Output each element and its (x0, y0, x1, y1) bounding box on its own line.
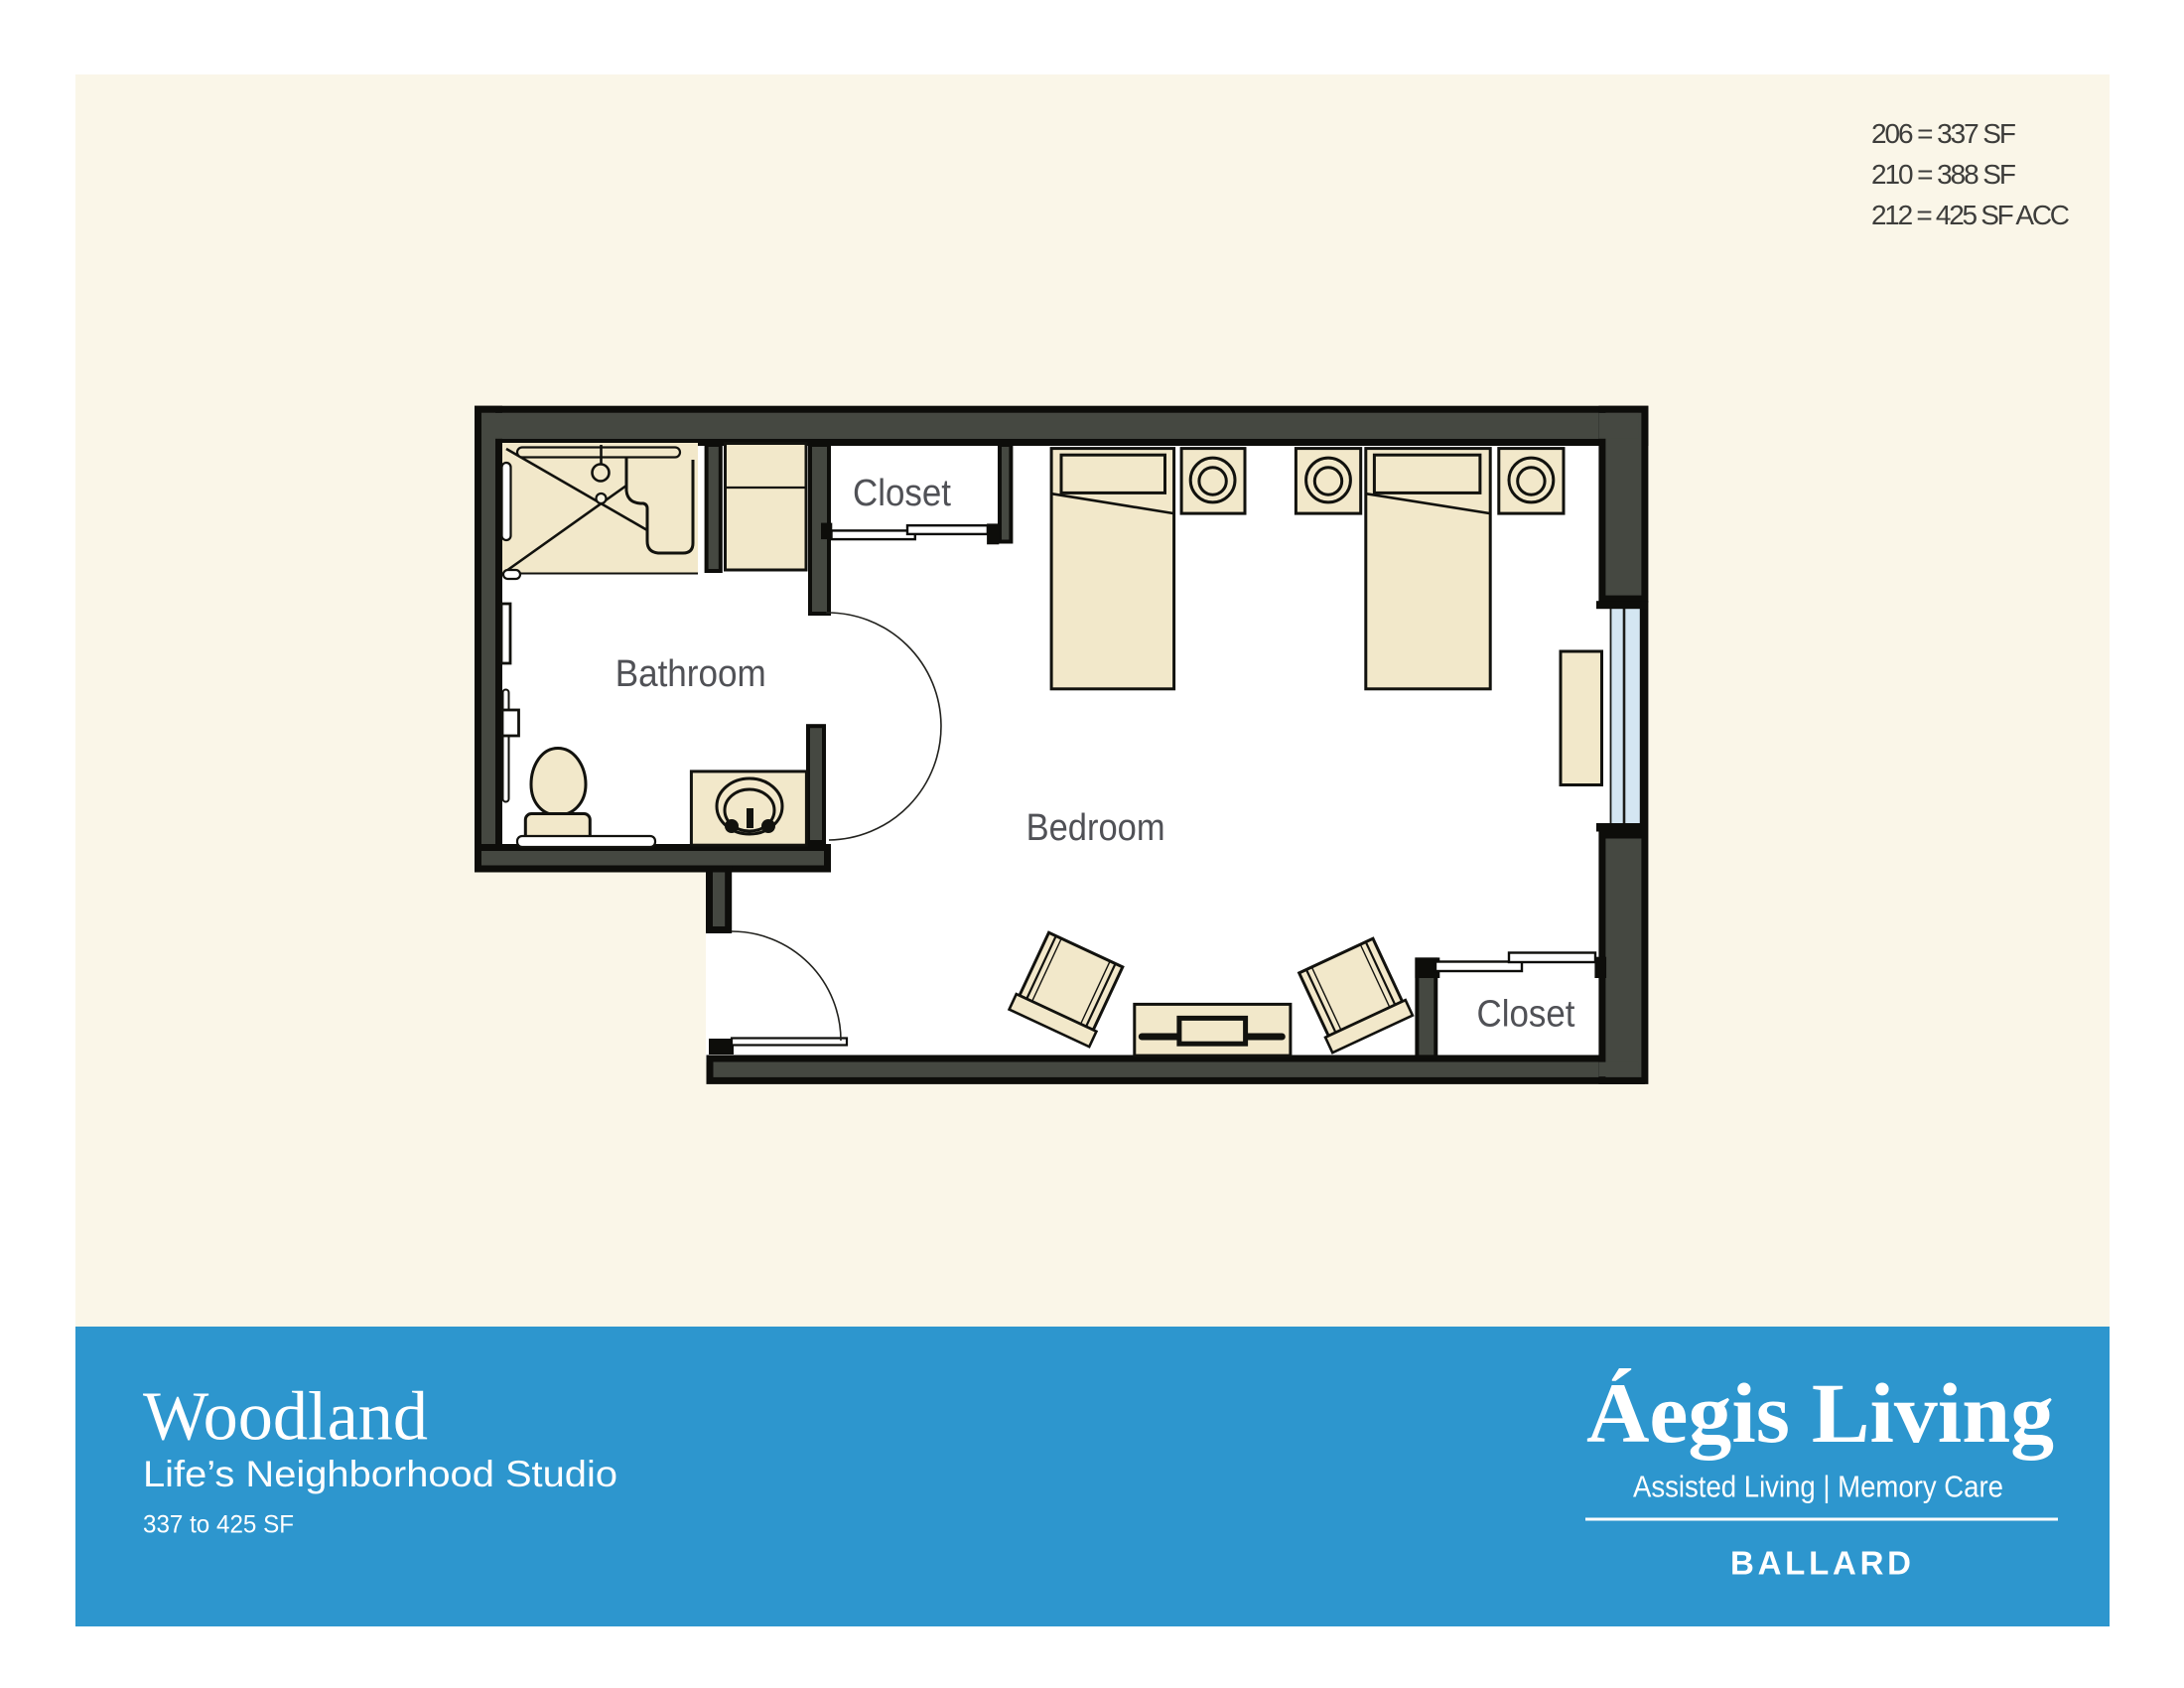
svg-text:Woodland: Woodland (143, 1379, 428, 1456)
svg-text:337 to 425 SF: 337 to 425 SF (143, 1511, 294, 1539)
svg-text:212 = 425 SF ACC: 212 = 425 SF ACC (1871, 200, 2070, 230)
svg-text:Assisted Living | Memory Care: Assisted Living | Memory Care (1633, 1470, 2003, 1504)
svg-text:Áegis Living: Áegis Living (1586, 1365, 2054, 1461)
svg-text:Bathroom: Bathroom (615, 653, 766, 695)
svg-text:Bedroom: Bedroom (1026, 807, 1165, 849)
svg-text:206 = 337 SF: 206 = 337 SF (1871, 118, 2016, 149)
svg-text:Closet: Closet (853, 473, 951, 514)
svg-text:Closet: Closet (1477, 993, 1575, 1035)
svg-text:Life’s Neighborhood Studio: Life’s Neighborhood Studio (143, 1454, 617, 1494)
svg-text:210 = 388 SF: 210 = 388 SF (1871, 159, 2016, 190)
